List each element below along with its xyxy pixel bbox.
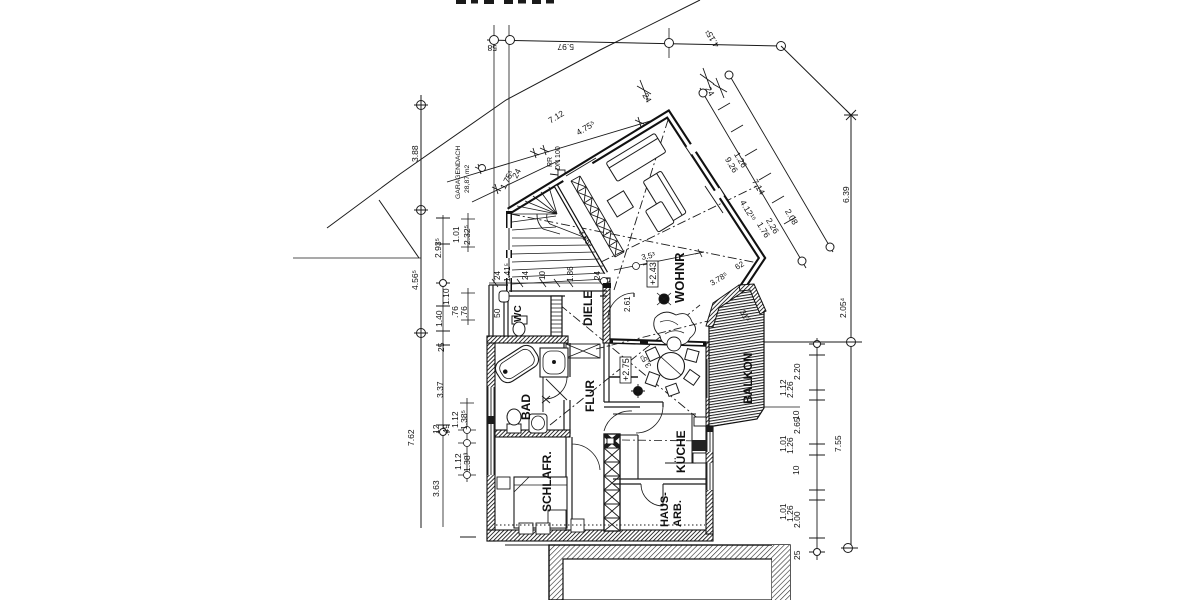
svg-text:28,87 m2: 28,87 m2 <box>464 164 471 193</box>
svg-text:1.40: 1.40 <box>434 310 444 327</box>
svg-text:25: 25 <box>436 342 446 352</box>
svg-text:2.20: 2.20 <box>792 363 802 380</box>
svg-text:+2.43: +2.43 <box>648 262 658 285</box>
svg-text:24: 24 <box>493 271 502 280</box>
svg-text:DN 100: DN 100 <box>555 146 562 170</box>
svg-text:50: 50 <box>492 308 502 318</box>
svg-text:25: 25 <box>792 550 802 560</box>
svg-text:2.26: 2.26 <box>785 381 795 398</box>
svg-text:RR: RR <box>547 157 554 167</box>
svg-text:2.05⁴: 2.05⁴ <box>838 297 848 318</box>
svg-text:3.37: 3.37 <box>435 381 445 398</box>
svg-text:58: 58 <box>487 43 497 53</box>
svg-text:1.26: 1.26 <box>785 437 795 454</box>
svg-text:+2.75: +2.75 <box>621 358 631 381</box>
svg-text:5.97: 5.97 <box>557 42 574 52</box>
svg-text:.76: .76 <box>459 306 469 318</box>
svg-text:6.39: 6.39 <box>841 186 851 203</box>
svg-text:BALKON: BALKON <box>741 353 755 404</box>
svg-text:1.86: 1.86 <box>566 266 575 282</box>
svg-text:SCHLAFR.: SCHLAFR. <box>540 451 554 512</box>
svg-text:3.88: 3.88 <box>410 145 420 162</box>
svg-text:1.38⁵: 1.38⁵ <box>459 410 469 430</box>
svg-text:1.38³: 1.38³ <box>462 452 472 472</box>
svg-text:10: 10 <box>791 465 801 475</box>
svg-text:1.01: 1.01 <box>451 226 461 243</box>
svg-text:GARAGENDACH: GARAGENDACH <box>455 146 462 199</box>
svg-text:2.65: 2.65 <box>792 417 802 434</box>
svg-text:24: 24 <box>521 271 530 280</box>
svg-text:1.10: 1.10 <box>441 288 451 305</box>
svg-text:3.63: 3.63 <box>431 480 441 497</box>
svg-text:WOHNR: WOHNR <box>672 252 687 303</box>
svg-text:HAUS-: HAUS- <box>659 492 671 527</box>
svg-text:FLUR: FLUR <box>583 380 597 412</box>
svg-text:BAD: BAD <box>519 394 533 420</box>
svg-text:DIELE: DIELE <box>581 291 595 326</box>
svg-text:1.26: 1.26 <box>785 505 795 522</box>
svg-text:2.32⁵: 2.32⁵ <box>462 225 472 245</box>
svg-text:10: 10 <box>538 271 547 280</box>
svg-text:2.61: 2.61 <box>623 296 632 312</box>
svg-text:12: 12 <box>431 424 441 434</box>
svg-text:KÜCHE: KÜCHE <box>673 430 688 473</box>
svg-text:ARB.: ARB. <box>672 500 684 527</box>
svg-text:2.93⁵: 2.93⁵ <box>433 238 443 258</box>
svg-text:WC: WC <box>513 305 524 322</box>
svg-text:7.55: 7.55 <box>833 435 843 452</box>
svg-text:1.41⁵: 1.41⁵ <box>503 263 512 282</box>
svg-text:4.56⁵: 4.56⁵ <box>410 270 420 290</box>
svg-text:7.62: 7.62 <box>406 429 416 446</box>
svg-text:24: 24 <box>593 271 602 280</box>
